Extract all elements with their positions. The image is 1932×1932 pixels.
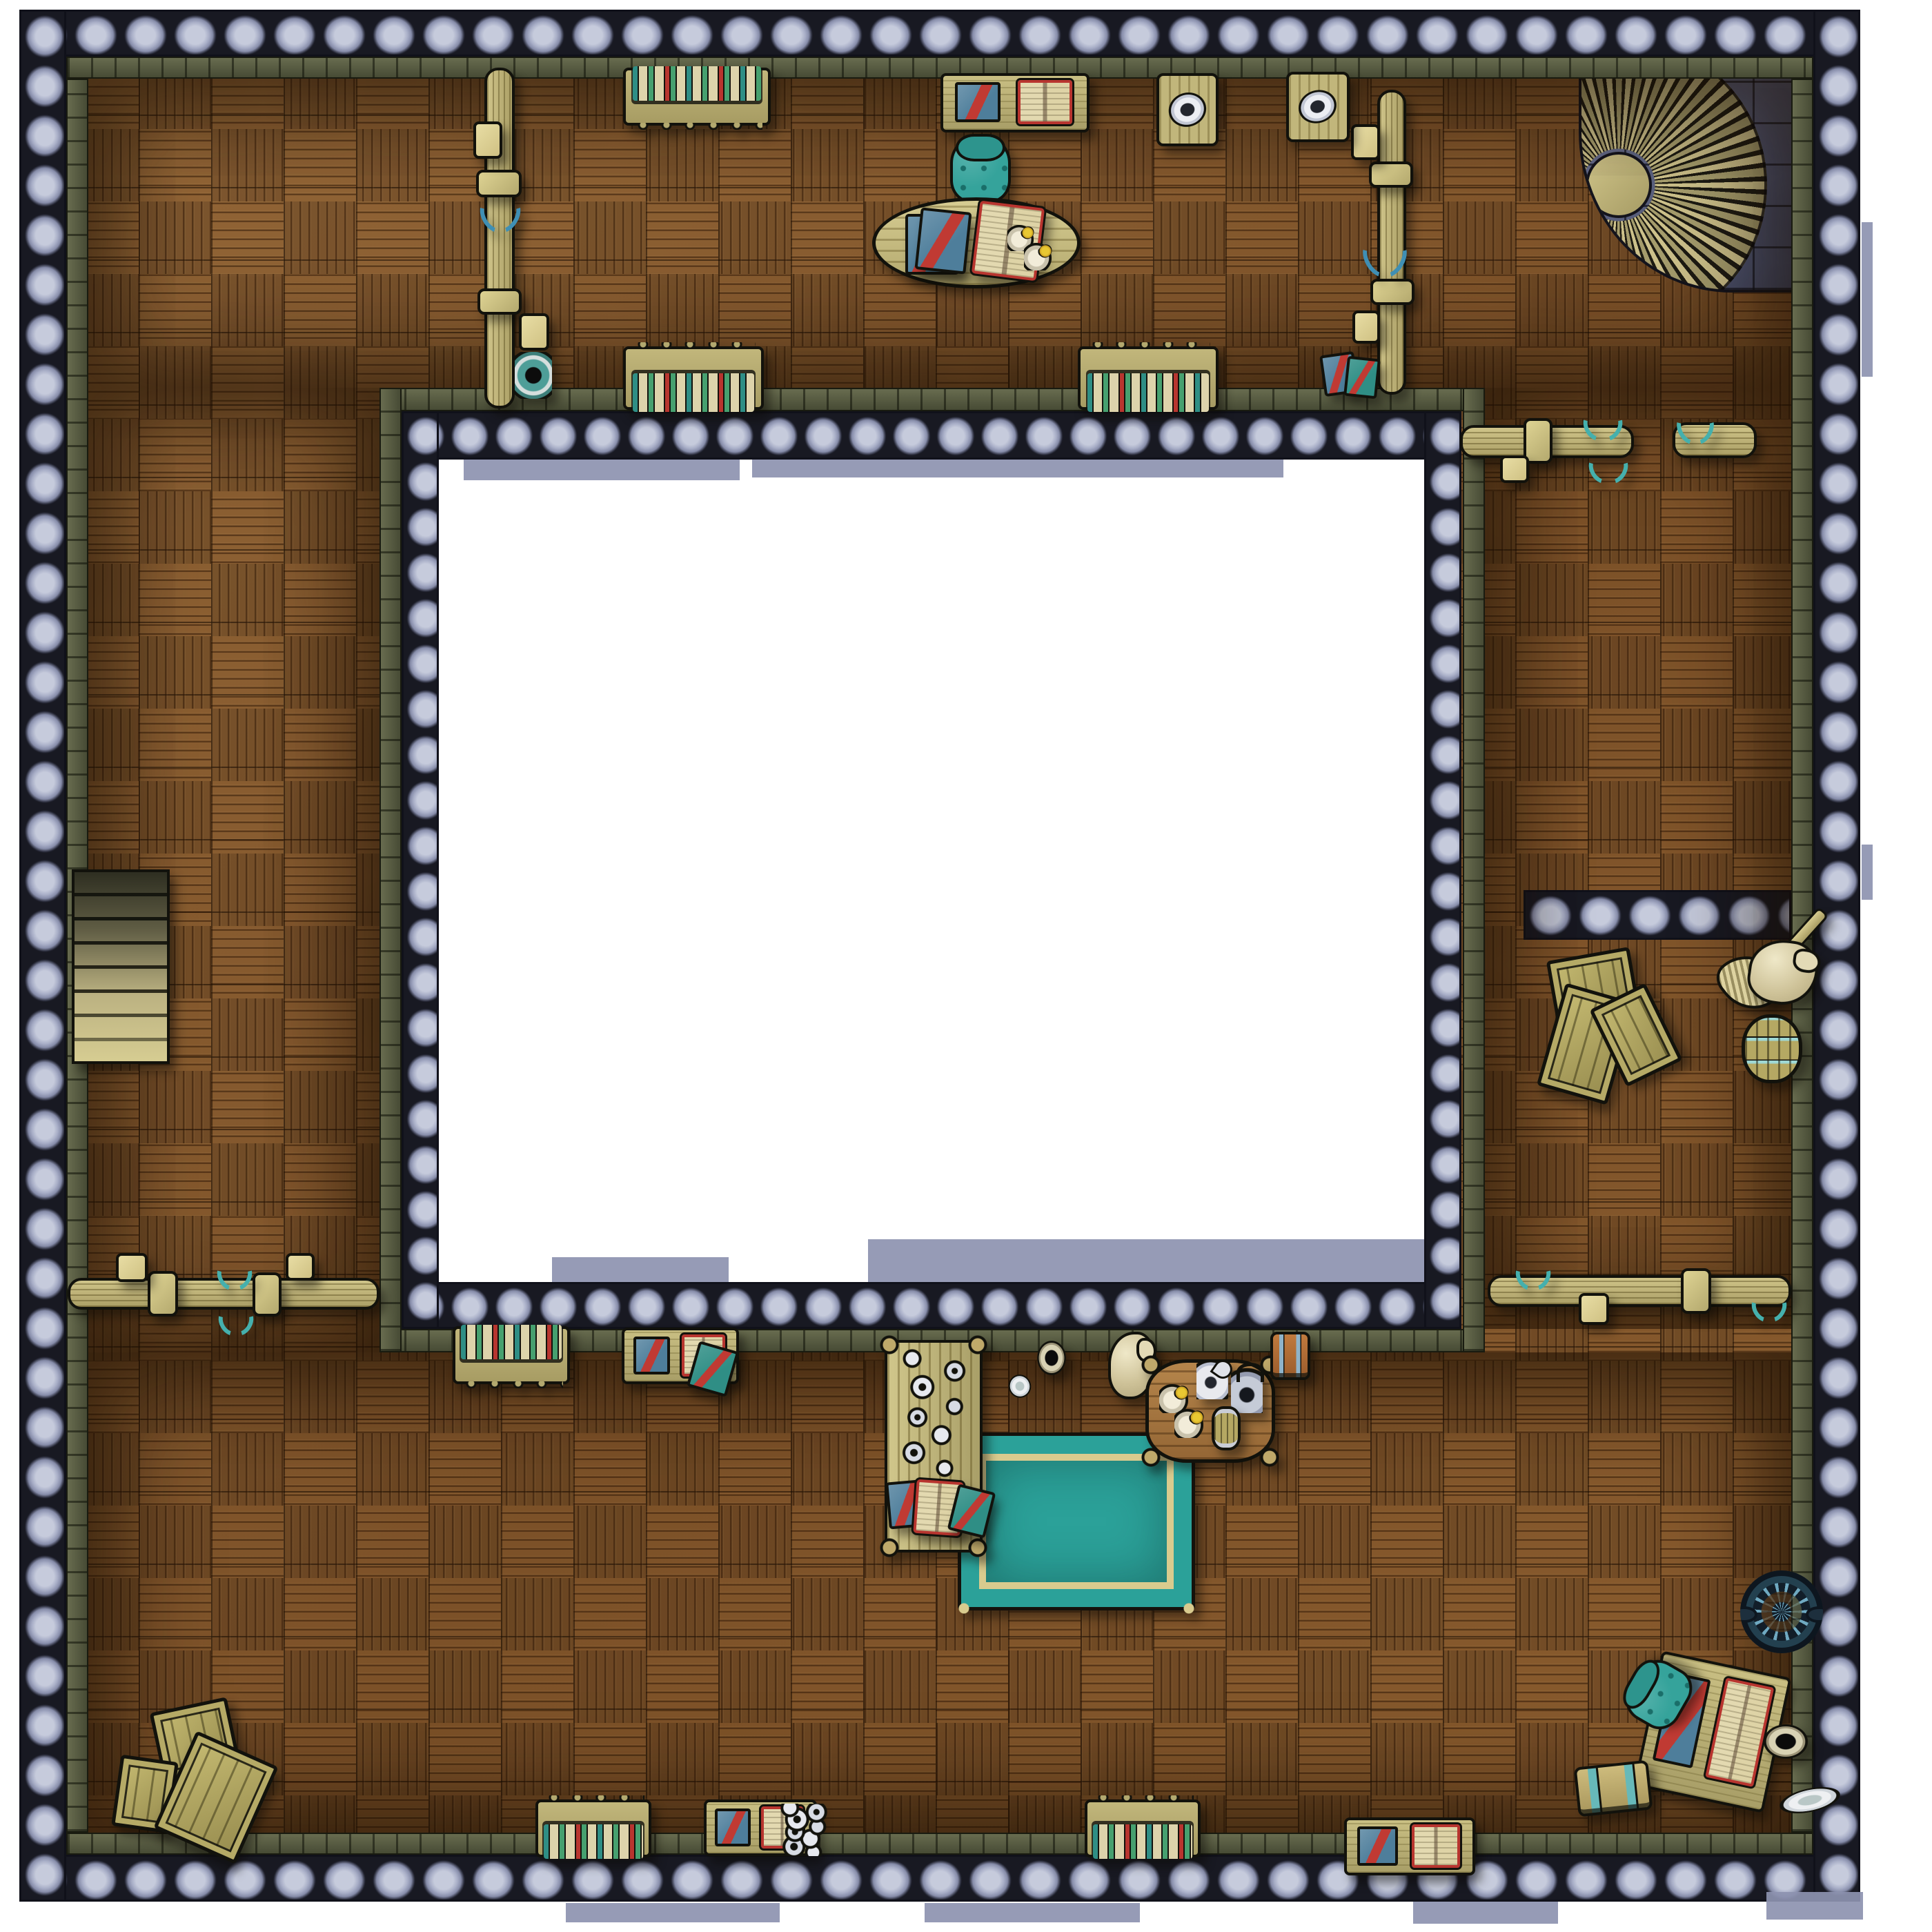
rope-knot: [1681, 1268, 1711, 1314]
staircase-down[interactable]: [72, 869, 170, 1064]
wall-patch: [1352, 310, 1380, 344]
rope-knot: [148, 1271, 178, 1317]
spinning-wheel[interactable]: [1740, 1570, 1823, 1653]
kettle: [1231, 1368, 1263, 1413]
coffee-cup[interactable]: [1758, 1718, 1813, 1765]
keg[interactable]: [1212, 1406, 1241, 1450]
rope-knot: [477, 288, 522, 315]
wall-patch: [1579, 1293, 1609, 1325]
outer-wall-shadow: [1413, 1902, 1558, 1924]
wall-hook: [219, 1307, 253, 1333]
rope-knot: [1370, 279, 1414, 305]
rope-knot: [1369, 161, 1413, 188]
wall-patch: [1500, 455, 1529, 483]
outer-wall-shadow: [1766, 1892, 1863, 1920]
wall-hook: [1590, 453, 1627, 482]
candle: [1024, 243, 1052, 270]
desk-with-books[interactable]: [1344, 1817, 1475, 1875]
barrel[interactable]: [1742, 1014, 1802, 1083]
courtyard-wall-shadow: [752, 460, 1283, 477]
armchair-teal[interactable]: [950, 137, 1011, 203]
wall-hook: [1584, 410, 1621, 439]
support-beam[interactable]: [484, 68, 515, 408]
side-table-with-plate[interactable]: [1286, 72, 1350, 142]
rope-knot: [253, 1272, 282, 1317]
battle-map: [0, 0, 1932, 1932]
courtyard-wall-shadow: [552, 1257, 729, 1282]
plates-scatter: [780, 1804, 831, 1856]
bookshelf[interactable]: [535, 1800, 651, 1857]
wall-hook: [482, 197, 519, 232]
bookshelf[interactable]: [453, 1326, 570, 1384]
furniture-layer: [0, 0, 1932, 1932]
candle: [1174, 1409, 1203, 1438]
bookshelf[interactable]: [623, 346, 764, 410]
wall-hook: [1678, 413, 1713, 443]
chest[interactable]: [1270, 1332, 1310, 1380]
wall-hook: [1517, 1261, 1550, 1288]
bookshelf[interactable]: [623, 68, 771, 126]
jug: [1196, 1362, 1228, 1399]
wall-patch: [519, 313, 549, 351]
bookshelf[interactable]: [1085, 1800, 1201, 1857]
desk-with-books[interactable]: [940, 73, 1090, 132]
outer-wall-shadow: [1862, 845, 1873, 900]
plate-oval: [1768, 1773, 1851, 1828]
outer-wall-shadow: [1862, 222, 1873, 377]
bookshelf[interactable]: [1078, 346, 1219, 410]
plates-scatter: [889, 1348, 978, 1479]
chest[interactable]: [1574, 1760, 1653, 1817]
outer-wall-shadow: [566, 1903, 780, 1922]
wall-patch: [286, 1253, 315, 1281]
book-teal[interactable]: [1343, 356, 1381, 400]
courtyard-wall-shadow: [464, 460, 740, 480]
wall-hook: [1753, 1293, 1786, 1319]
wall-patch: [1351, 124, 1380, 160]
outer-wall-shadow: [925, 1903, 1140, 1922]
courtyard-wall-shadow: [868, 1239, 1424, 1282]
clay-pot[interactable]: [515, 352, 552, 399]
wall-patch: [473, 121, 502, 159]
book-blue[interactable]: [914, 207, 972, 274]
wall-hook: [218, 1261, 251, 1288]
wall-hook: [1365, 239, 1405, 277]
coffee-cup[interactable]: [1034, 1334, 1069, 1381]
rope-knot: [476, 170, 522, 197]
wall-patch: [116, 1253, 148, 1282]
side-table-with-plate[interactable]: [1156, 73, 1219, 146]
